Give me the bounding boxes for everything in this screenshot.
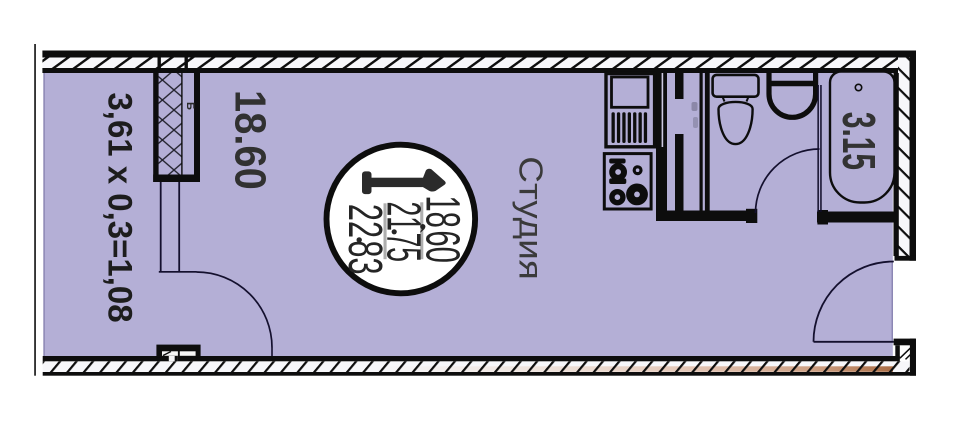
svg-text:Студия: Студия <box>512 156 549 279</box>
svg-text:Б: Б <box>184 102 196 110</box>
svg-text:22: 22 <box>338 204 392 238</box>
svg-text:3.15: 3.15 <box>832 112 883 170</box>
svg-text:3,61 х 0,3=1,08: 3,61 х 0,3=1,08 <box>100 92 138 322</box>
svg-text:83: 83 <box>338 240 392 274</box>
svg-text:18.60: 18.60 <box>226 90 275 190</box>
